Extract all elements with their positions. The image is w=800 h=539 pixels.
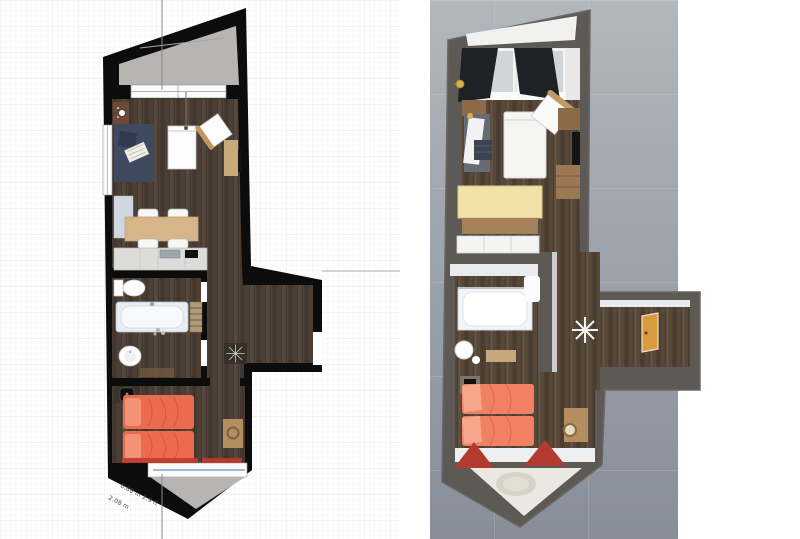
2d-top-window [131, 85, 226, 98]
table-base [462, 218, 538, 234]
2d-hall-bedroom-opening [210, 378, 240, 387]
floorplan-2d-view: 0.88 m 2.9 ft 2.08 m [0, 0, 400, 539]
pattern-pillow [474, 140, 492, 160]
2d-entry-door-opening [313, 332, 322, 365]
kitchen-counter [114, 248, 207, 270]
curtain-red [122, 458, 198, 463]
bedroom-desk [223, 419, 243, 448]
bed-orange-1 [462, 384, 534, 414]
cabinet [558, 108, 580, 130]
kitchen-cabinets [457, 236, 539, 253]
2d-bathroom-door-gap-1 [201, 282, 207, 302]
cooktop [185, 250, 198, 258]
gold-decor [467, 113, 473, 119]
bathtub [458, 288, 532, 330]
3d-bedroom1-windows [454, 48, 580, 102]
desk [224, 140, 238, 176]
dining-table [458, 186, 542, 218]
cabinet [556, 165, 580, 199]
bed-orange-2 [123, 431, 194, 462]
single-bed [168, 126, 196, 169]
3d-bathroom [455, 276, 540, 384]
2d-doormat [224, 343, 247, 364]
2d-bottom-window [148, 463, 247, 477]
washbasin [119, 346, 141, 366]
bath-shelf [486, 350, 516, 362]
bedroom-desk [564, 408, 588, 442]
wall-face [450, 264, 538, 276]
2d-bathroom-door-gap-2 [201, 340, 207, 366]
3d-bedroom2 [454, 372, 595, 468]
floorplan-2d-drawing: 0.88 m 2.9 ft 2.08 m [0, 0, 400, 539]
kitchen-sink [160, 250, 180, 258]
pillow [118, 131, 137, 148]
floorplan-3d-view [400, 0, 800, 539]
dining-chair [138, 239, 158, 249]
2d-dining-kitchen [114, 209, 207, 270]
wood-chest [462, 100, 486, 116]
curtain-red [202, 458, 242, 463]
toilet [524, 276, 540, 302]
floorplan-3d-drawing [400, 0, 800, 539]
floorplan-comparison-image: 0.88 m 2.9 ft 2.08 m [0, 0, 800, 539]
dining-table [125, 217, 198, 241]
wall-face [600, 300, 690, 307]
dining-chair [168, 239, 188, 249]
2d-left-window [103, 125, 112, 195]
towel-ladder [190, 302, 202, 332]
bath-shelf [140, 368, 174, 377]
wall-face [552, 252, 557, 390]
toilet [114, 280, 145, 296]
entry-door-gold [642, 313, 658, 352]
tv-panel [238, 150, 242, 172]
bed-orange-1 [123, 395, 194, 429]
bed-orange-2 [462, 416, 534, 446]
bathtub [116, 302, 188, 332]
